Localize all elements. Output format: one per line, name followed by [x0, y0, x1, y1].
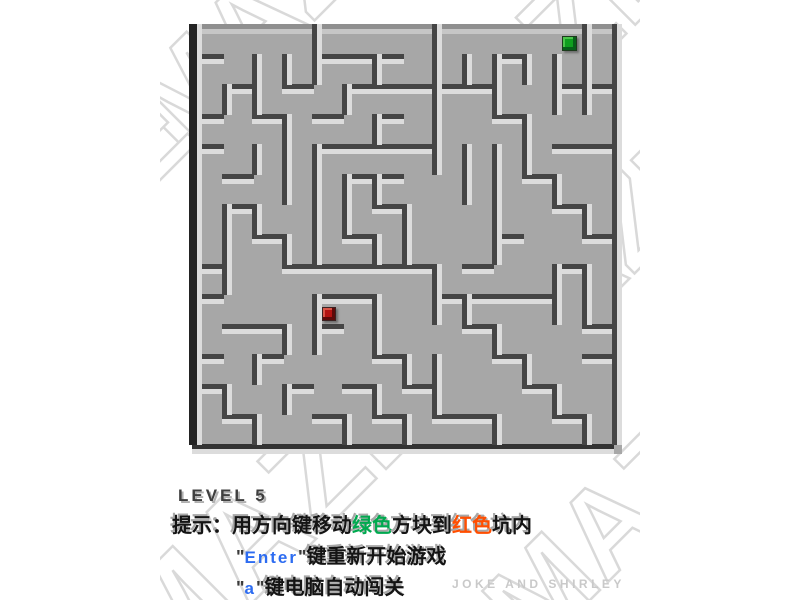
- hint-text: 提示：用方向键移动绿色方块到红色坑内: [172, 509, 532, 538]
- hint-segment: ": [236, 547, 245, 567]
- hint-segment: ": [256, 578, 265, 598]
- hint-segment: ": [298, 547, 307, 567]
- hint-segment: a: [245, 579, 256, 598]
- autoplay-hint-text: "a"键电脑自动闯关: [236, 571, 405, 600]
- hint-segment: 方块到: [392, 515, 452, 537]
- hint-segment: 提示：用方向键移动: [172, 515, 352, 537]
- hint-segment: Enter: [245, 548, 298, 567]
- level-indicator: LEVEL 5: [178, 486, 268, 506]
- credit-text: JOKE AND SHIRLEY: [452, 577, 625, 591]
- hint-segment: 坑内: [492, 515, 532, 537]
- hint-segment: 绿色: [352, 515, 392, 537]
- hint-segment: 红色: [452, 515, 492, 537]
- restart-hint-text: "Enter"键重新开始游戏: [236, 540, 447, 569]
- hint-segment: ": [236, 578, 245, 598]
- hint-segment: 键重新开始游戏: [307, 546, 447, 568]
- hint-segment: 键电脑自动闯关: [265, 577, 405, 599]
